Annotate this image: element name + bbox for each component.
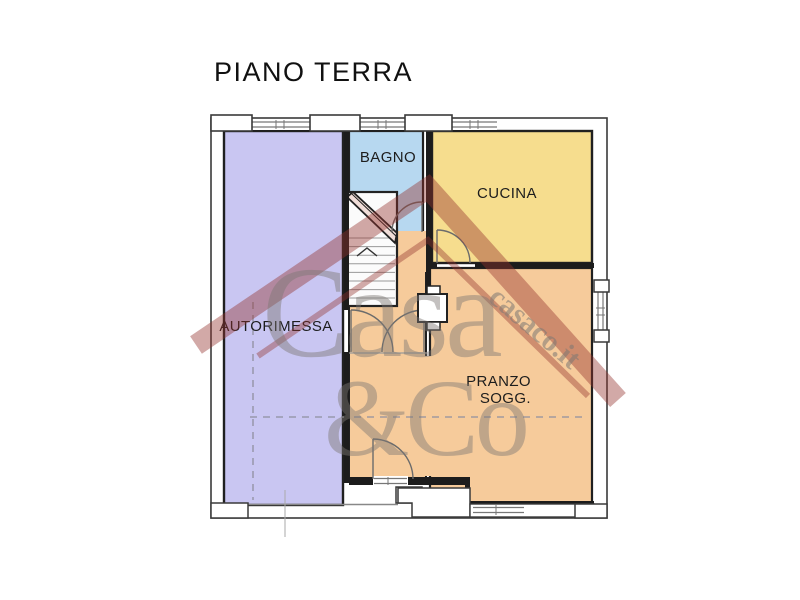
watermark-brand-co: &Co (324, 357, 526, 479)
page-title: PIANO TERRA (214, 57, 413, 87)
pillar-top-2 (310, 115, 360, 131)
floor-plan-canvas: PIANO TERRA (0, 0, 800, 600)
pillar-top-1 (211, 115, 252, 131)
label-cucina: CUCINA (477, 185, 537, 202)
label-bagno: BAGNO (360, 149, 416, 166)
pillar-bottom-right (575, 504, 607, 518)
pillar-right-1 (594, 280, 609, 292)
window-bagno (360, 119, 405, 130)
floor-plan-page: PIANO TERRA (0, 0, 800, 600)
pillar-bottom-left (211, 503, 248, 518)
pillar-top-3 (405, 115, 452, 131)
pillar-right-2 (594, 330, 609, 342)
window-cucina (452, 119, 497, 130)
window-autorimessa (252, 119, 310, 130)
